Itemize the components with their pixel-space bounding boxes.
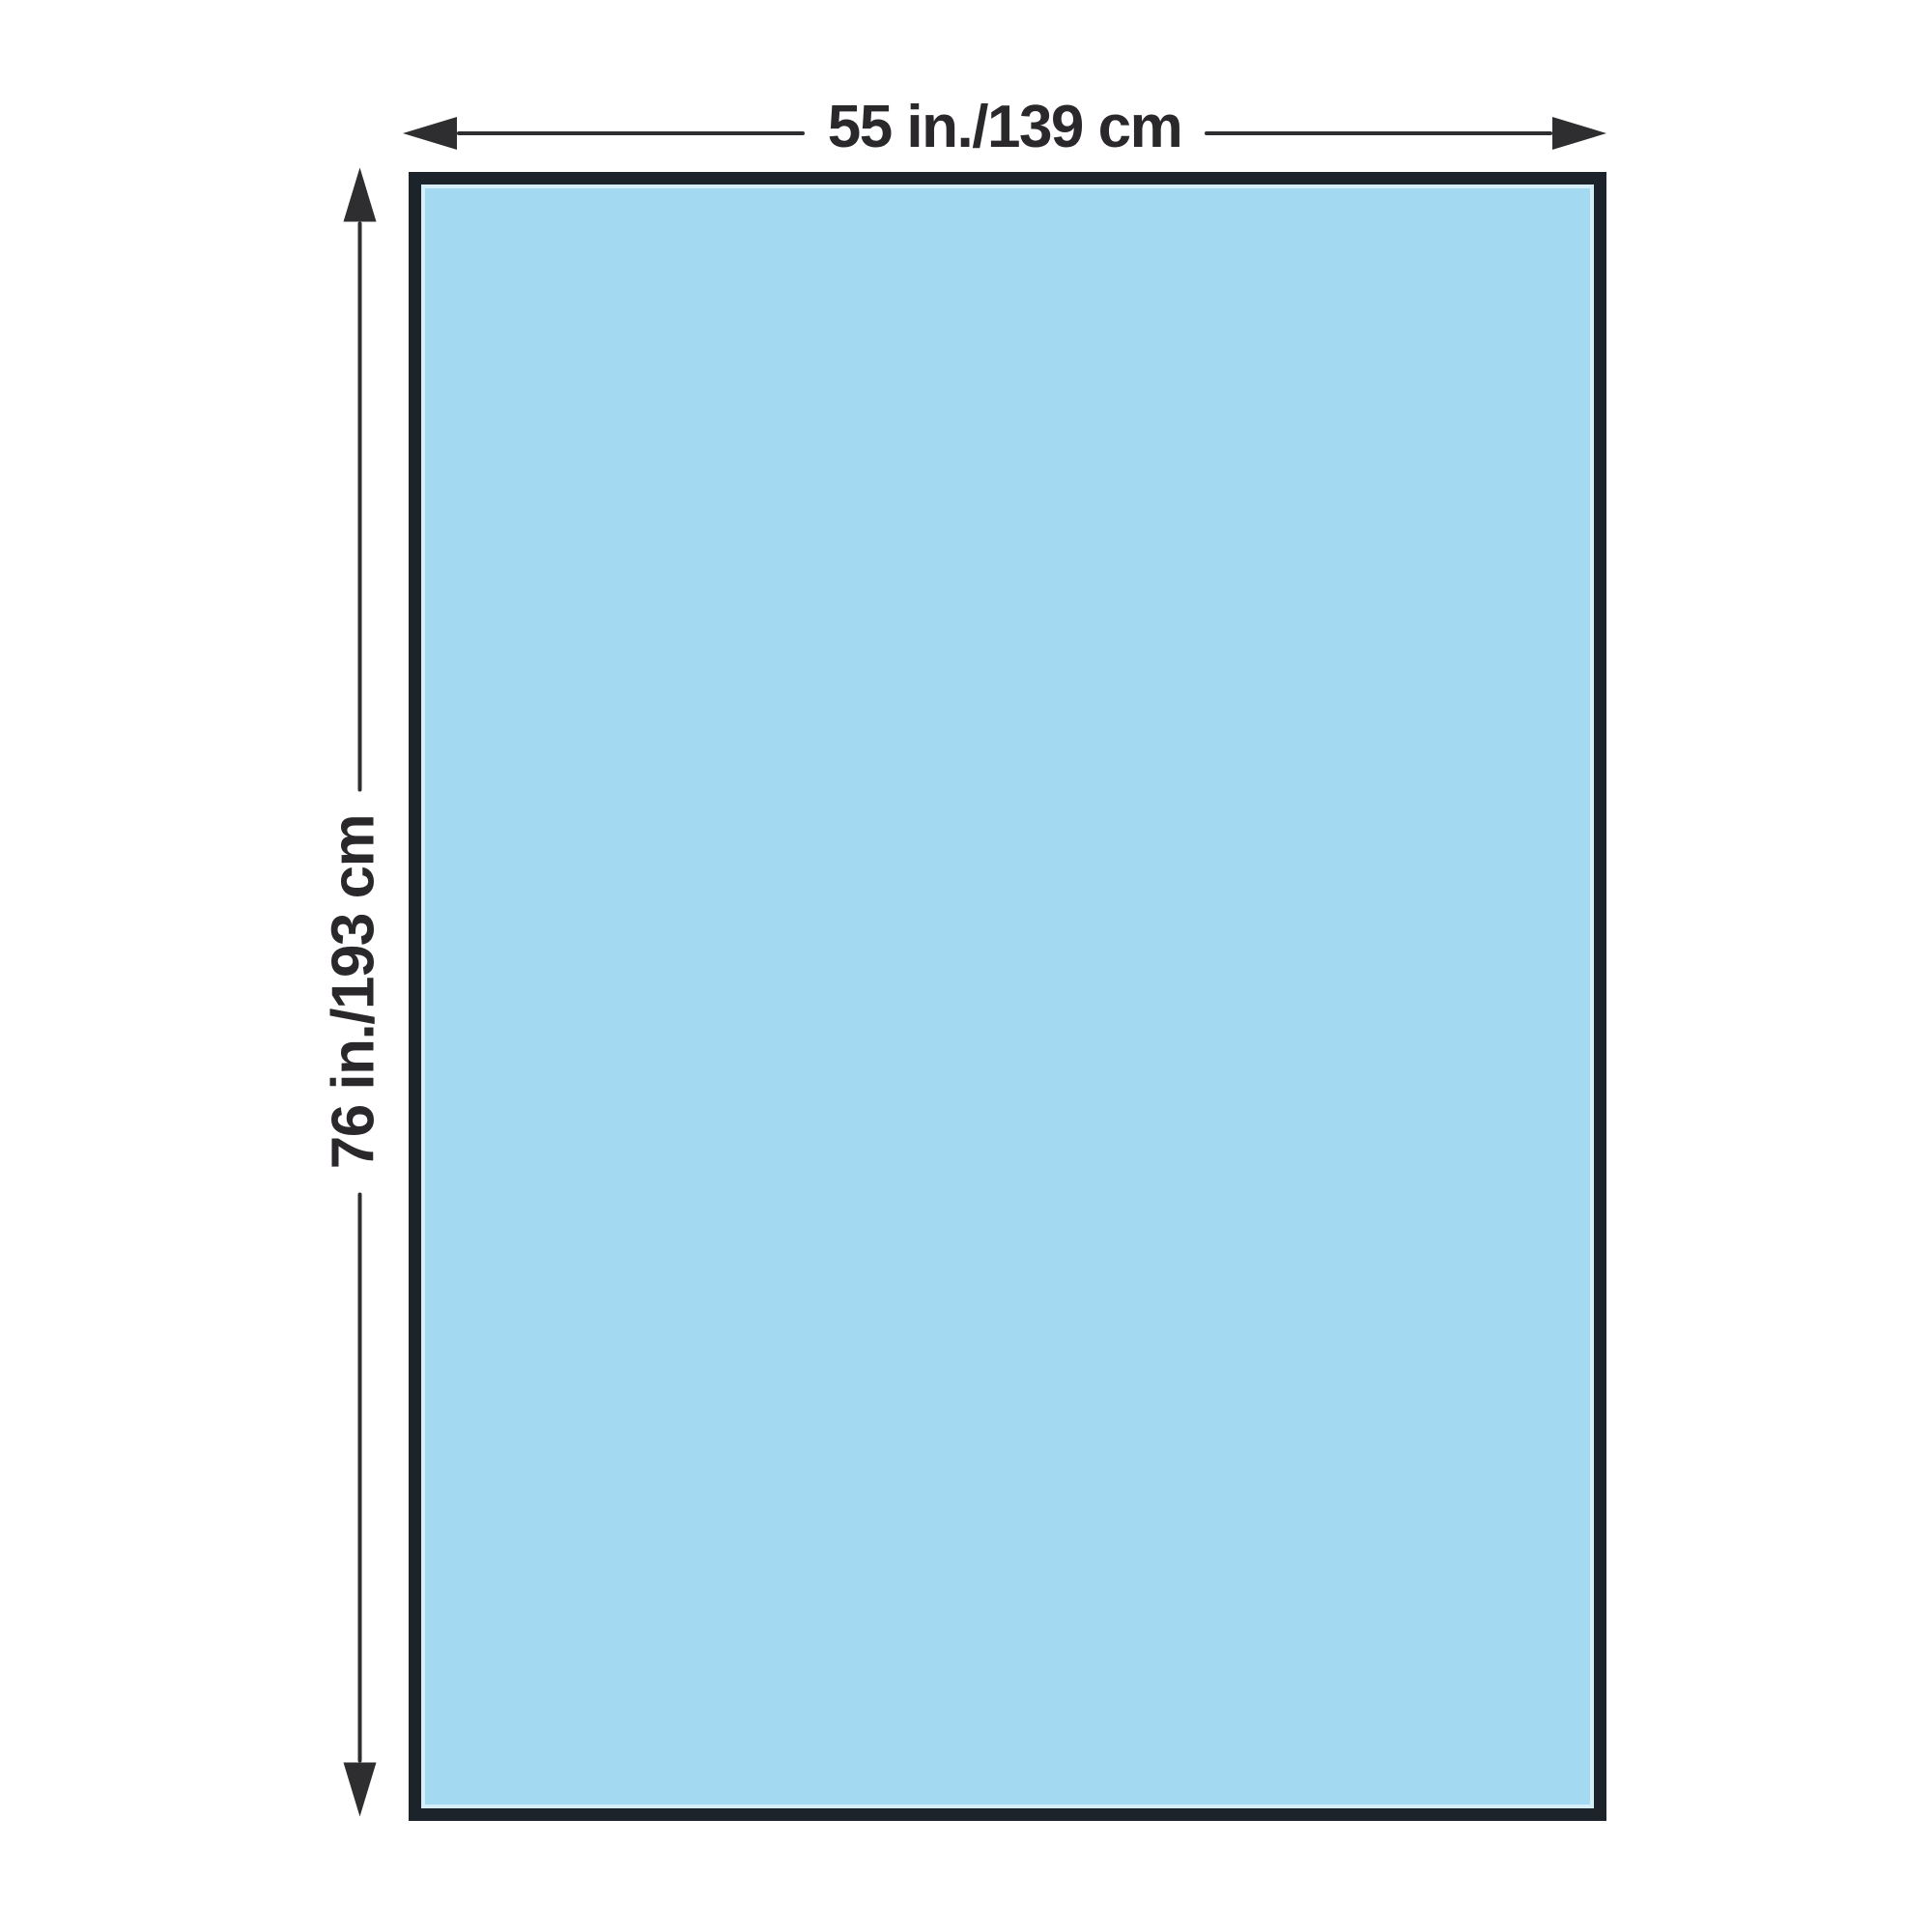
dimension-diagram: 55 in./139 cm 76 in./193 cm — [0, 0, 1932, 1932]
width-dimension: 55 in./139 cm — [403, 99, 1606, 168]
dimension-line-segment — [1205, 131, 1552, 135]
drape-rectangle — [409, 172, 1606, 1821]
arrow-right-icon — [1552, 117, 1606, 150]
height-dimension: 76 in./193 cm — [326, 168, 395, 1817]
width-dimension-label: 55 in./139 cm — [828, 98, 1182, 157]
dimension-line-segment — [358, 222, 362, 792]
arrow-left-icon — [403, 117, 457, 150]
dimension-line-segment — [358, 1192, 362, 1762]
arrow-down-icon — [344, 1763, 377, 1817]
dimension-line-segment — [457, 131, 805, 135]
height-dimension-label: 76 in./193 cm — [325, 815, 384, 1170]
arrow-up-icon — [344, 168, 377, 222]
